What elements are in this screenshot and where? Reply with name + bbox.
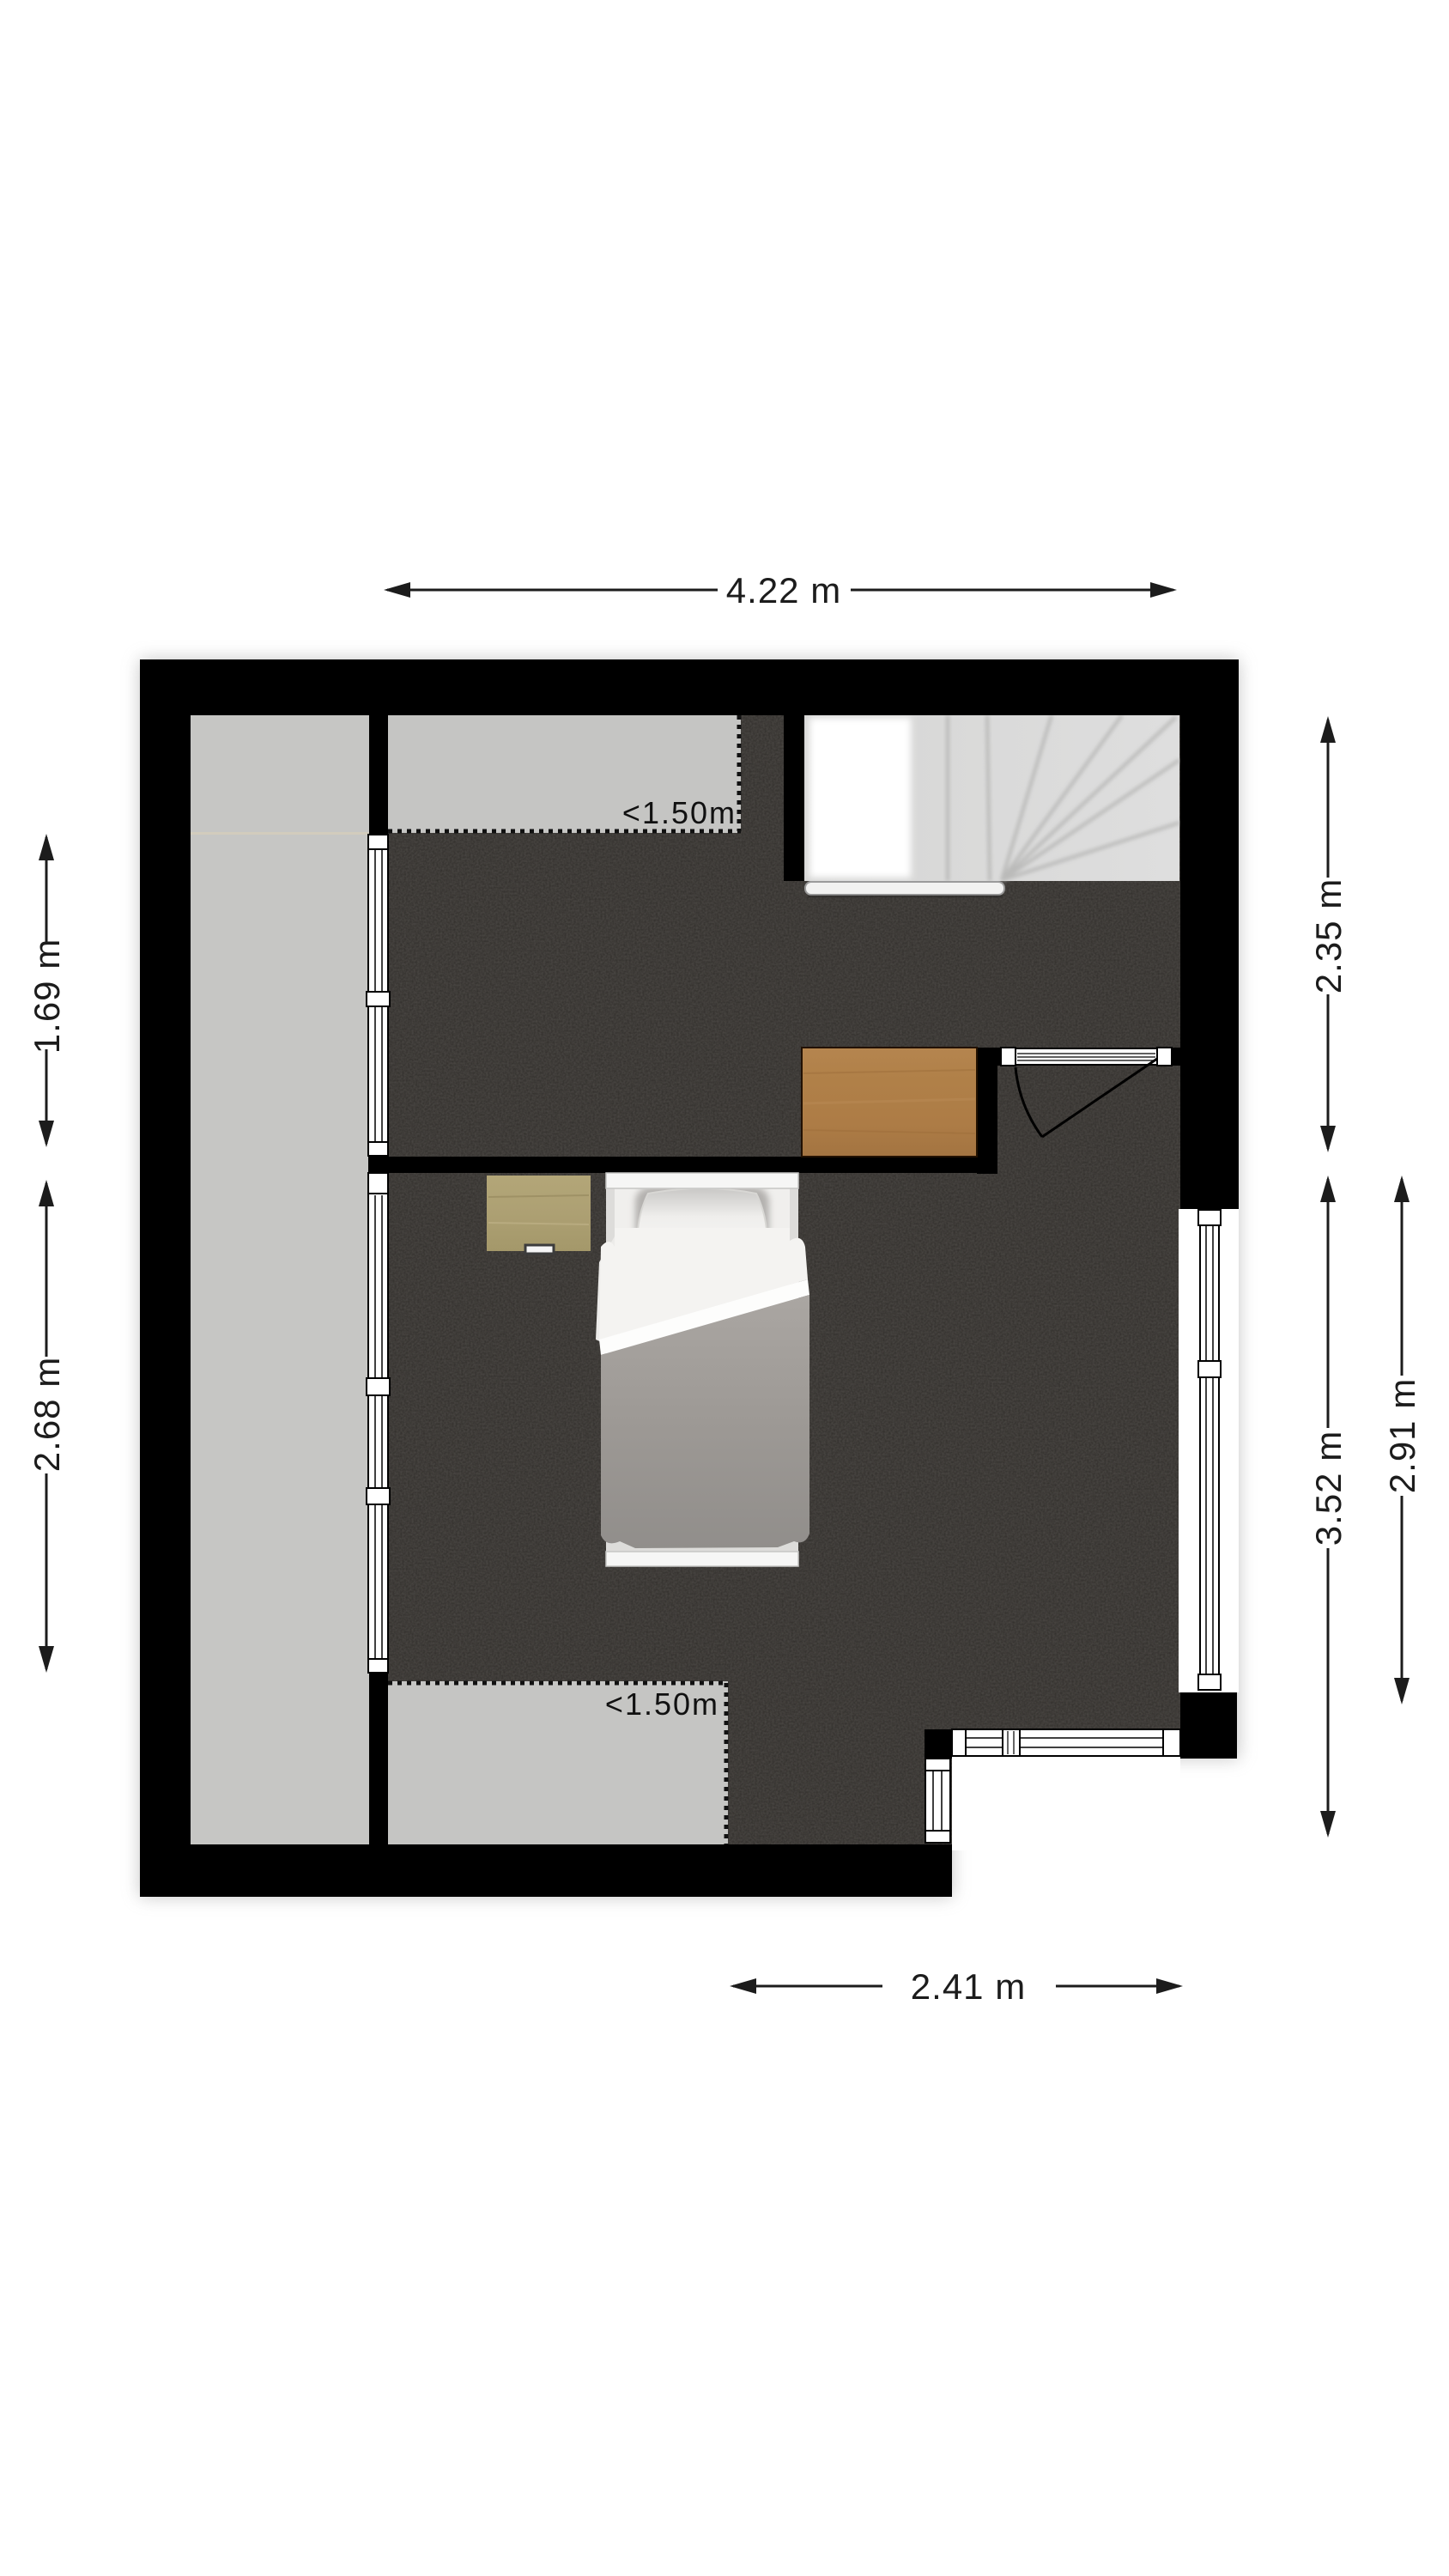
svg-text:<1.50m: <1.50m (622, 795, 737, 830)
svg-text:2.35 m: 2.35 m (1308, 878, 1349, 993)
svg-text:4.22 m: 4.22 m (726, 570, 841, 611)
svg-text:<1.50m: <1.50m (605, 1686, 719, 1722)
svg-text:3.52 m: 3.52 m (1308, 1431, 1349, 1546)
svg-text:2.41 m: 2.41 m (911, 1966, 1026, 2007)
svg-text:2.68 m: 2.68 m (27, 1357, 67, 1472)
svg-text:1.69 m: 1.69 m (27, 939, 67, 1054)
svg-text:2.91 m: 2.91 m (1382, 1378, 1422, 1493)
